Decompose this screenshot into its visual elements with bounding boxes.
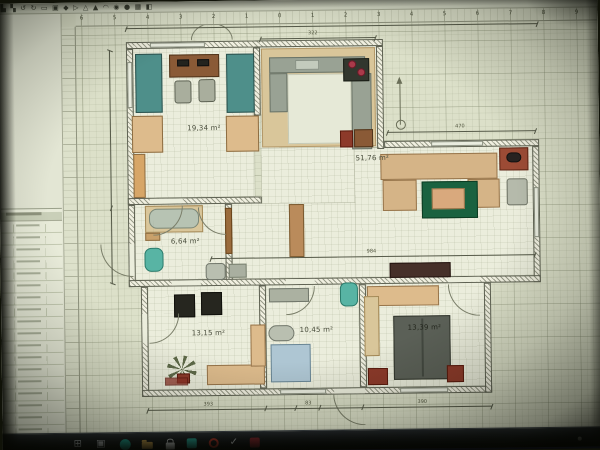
dimension-line [387, 130, 536, 133]
task-view-icon[interactable]: ▣ [95, 438, 107, 450]
washbasin[interactable] [144, 248, 163, 272]
wall[interactable] [376, 46, 384, 149]
store-glyph [165, 442, 174, 449]
window-bottom-left[interactable] [280, 389, 326, 395]
tool-icon-8[interactable]: ▷ [73, 3, 79, 12]
store-icon[interactable] [164, 438, 176, 450]
furniture-list-row[interactable] [1, 223, 62, 233]
ruler-label: 0 [278, 13, 282, 19]
room-area-label: 6,64 m² [171, 237, 200, 245]
monitor-screen: ▙▚↺↻▭▣◆▷△▲◠◉●▦◧ 6543210123456789 N 1 317… [0, 0, 600, 450]
furniture-list-row[interactable] [1, 247, 62, 257]
start-button-glyph: ⊞ [74, 439, 83, 450]
furniture-list-row[interactable] [3, 415, 64, 425]
desk-return[interactable] [207, 364, 265, 385]
door-opening [142, 314, 147, 343]
file-explorer-glyph [141, 442, 152, 449]
tool-icon-2[interactable]: ▚ [10, 4, 16, 13]
hall-mat[interactable] [229, 264, 247, 278]
furniture-list-row[interactable] [3, 391, 64, 401]
ruler-label: 2 [344, 12, 348, 18]
start-button-icon[interactable]: ⊞ [72, 439, 84, 450]
dimension-label: 390 [417, 399, 427, 405]
room-floor [261, 147, 355, 203]
room-area-label: 13,15 m² [192, 329, 226, 337]
tool-icon-11[interactable]: ◠ [103, 3, 109, 12]
red-app-icon[interactable] [249, 436, 261, 448]
tool-icon-3[interactable]: ↺ [20, 4, 26, 13]
washing-machine[interactable] [271, 344, 311, 382]
sofa-teal-right[interactable] [226, 54, 255, 113]
ruler-label: 9 [575, 10, 579, 16]
photo-frame: ▙▚↺↻▭▣◆▷△▲◠◉●▦◧ 6543210123456789 N 1 317… [0, 0, 600, 450]
kitchen-cabinet-red[interactable] [340, 130, 353, 147]
tool-icon-5[interactable]: ▭ [41, 4, 48, 13]
armchair-gray[interactable] [507, 178, 528, 205]
tool-icon-1[interactable]: ▙ [0, 4, 6, 13]
desk-chair-right[interactable] [198, 79, 215, 102]
ruler-label: 5 [113, 15, 117, 21]
ruler-label: 1 [311, 13, 315, 19]
check-app-glyph: ✓ [229, 437, 238, 449]
furniture-list-row[interactable] [3, 355, 64, 365]
nightstand-right[interactable] [447, 365, 464, 382]
task-view-glyph: ▣ [96, 438, 106, 450]
ruler-label: 6 [476, 11, 480, 17]
window-office-top[interactable] [150, 42, 205, 48]
room-area-label: 13,39 m² [408, 323, 442, 331]
ruler-label: 1 [245, 14, 249, 20]
tool-icon-9[interactable]: △ [83, 3, 89, 12]
window-bottom-bedroom[interactable] [400, 387, 448, 393]
opera-browser-glyph [208, 438, 219, 449]
dimension-label: 322 [308, 30, 318, 36]
furniture-list-row[interactable] [3, 379, 64, 389]
side-table-bowl[interactable] [506, 152, 521, 162]
furniture-list-row[interactable] [1, 235, 62, 245]
stove-burner-1[interactable] [348, 60, 356, 68]
ruler-label: 7 [509, 10, 513, 16]
door-opening [448, 277, 480, 282]
tool-icon-6[interactable]: ▣ [52, 3, 59, 12]
window-right[interactable] [534, 187, 540, 237]
corner-stove[interactable] [343, 58, 369, 81]
dimension-label: 470 [455, 123, 465, 129]
window-office-left[interactable] [127, 62, 133, 108]
red-mat[interactable] [165, 377, 188, 385]
nightstand-left[interactable] [368, 368, 388, 385]
ruler-label: 2 [212, 14, 216, 20]
hall-cabinet[interactable] [289, 204, 305, 257]
tray-icon[interactable] [578, 437, 582, 441]
furniture-list-row[interactable] [2, 307, 63, 317]
wardrobe-left[interactable] [364, 296, 380, 356]
sink-oval[interactable] [268, 325, 294, 341]
furniture-list-header [1, 211, 62, 221]
ruler-label: 5 [443, 11, 447, 17]
red-app-glyph [250, 438, 260, 448]
chair-black-2[interactable] [201, 292, 222, 315]
tool-icon-4[interactable]: ↻ [31, 4, 37, 13]
room-area-label: 19,34 m² [187, 124, 221, 132]
toilet[interactable] [206, 263, 226, 280]
ruler-label: 8 [542, 10, 546, 16]
furniture-list-row[interactable] [2, 331, 63, 341]
door-opening [286, 279, 315, 284]
tool-icon-12[interactable]: ◉ [113, 3, 119, 12]
dimension-label: 83 [305, 400, 311, 406]
cabinet-right[interactable] [226, 115, 259, 151]
furniture-list [1, 208, 65, 432]
ruler-label: 3 [179, 14, 183, 20]
door-arc [212, 23, 233, 40]
tv-sideboard[interactable] [390, 262, 451, 278]
room-area-label: 51,76 m² [356, 154, 390, 162]
tool-icon-13[interactable]: ● [124, 3, 130, 12]
furniture-list-row[interactable] [3, 343, 64, 353]
furniture-list-row[interactable] [2, 271, 63, 281]
dimension-label: 984 [367, 248, 377, 254]
wall[interactable] [484, 283, 492, 393]
furniture-list-row[interactable] [2, 259, 63, 269]
plan-canvas[interactable]: N 1 3173224709843938339019,34 m²51,76 m²… [76, 20, 600, 432]
tool-icon-14[interactable]: ▦ [135, 2, 142, 11]
tool-icon-10[interactable]: ▲ [93, 3, 99, 12]
side-panel [0, 14, 67, 434]
monitor-right[interactable] [197, 59, 209, 66]
ruler-label: 4 [410, 12, 414, 18]
edge-browser-icon[interactable] [119, 438, 131, 450]
ruler-label: 6 [80, 16, 84, 22]
mail-glyph [187, 438, 197, 448]
kitchen-sink[interactable] [295, 60, 319, 70]
furniture-list-row[interactable] [3, 403, 64, 413]
door-arc [191, 23, 212, 40]
furniture-list-row[interactable] [3, 367, 64, 377]
floor-plan: N 1 3173224709843938339019,34 m²51,76 m²… [76, 20, 600, 432]
sofa-main[interactable] [380, 153, 497, 180]
tool-icon-15[interactable]: ◧ [146, 2, 153, 11]
edge-browser-glyph [119, 439, 130, 450]
ruler-label: 3 [377, 12, 381, 18]
sofa-teal-left[interactable] [135, 54, 163, 113]
door-opening [172, 280, 201, 285]
kitchen-counter-left[interactable] [269, 73, 287, 112]
sofa-left-section[interactable] [383, 180, 417, 211]
desk-chair-left[interactable] [174, 80, 191, 103]
wardrobe-strip[interactable] [133, 154, 146, 198]
door-opening [150, 198, 183, 203]
coffee-table[interactable] [432, 188, 465, 209]
window-living-top[interactable] [431, 141, 483, 147]
monitor-left[interactable] [177, 59, 189, 66]
furniture-list-row[interactable] [2, 295, 63, 305]
room-area-label: 10,45 m² [300, 326, 334, 334]
dimension-label: 393 [203, 401, 213, 407]
stove-burner-2[interactable] [357, 68, 365, 76]
check-app-icon[interactable]: ✓ [228, 437, 240, 449]
ruler-label: 4 [146, 15, 150, 21]
door-arc [100, 244, 133, 277]
compass-arrow-icon [399, 83, 401, 125]
furniture-list-row[interactable] [2, 319, 63, 329]
file-explorer-icon[interactable] [141, 438, 153, 450]
desk-side[interactable] [250, 324, 266, 366]
tool-icon-7[interactable]: ◆ [63, 3, 69, 12]
furniture-list-row[interactable] [2, 283, 63, 293]
mail-icon[interactable] [186, 437, 198, 449]
cabinet-left[interactable] [132, 116, 163, 153]
kitchen-cabinet-brown[interactable] [354, 129, 373, 147]
opera-browser-icon[interactable] [208, 437, 220, 449]
corner-sink-teal[interactable] [340, 282, 358, 306]
